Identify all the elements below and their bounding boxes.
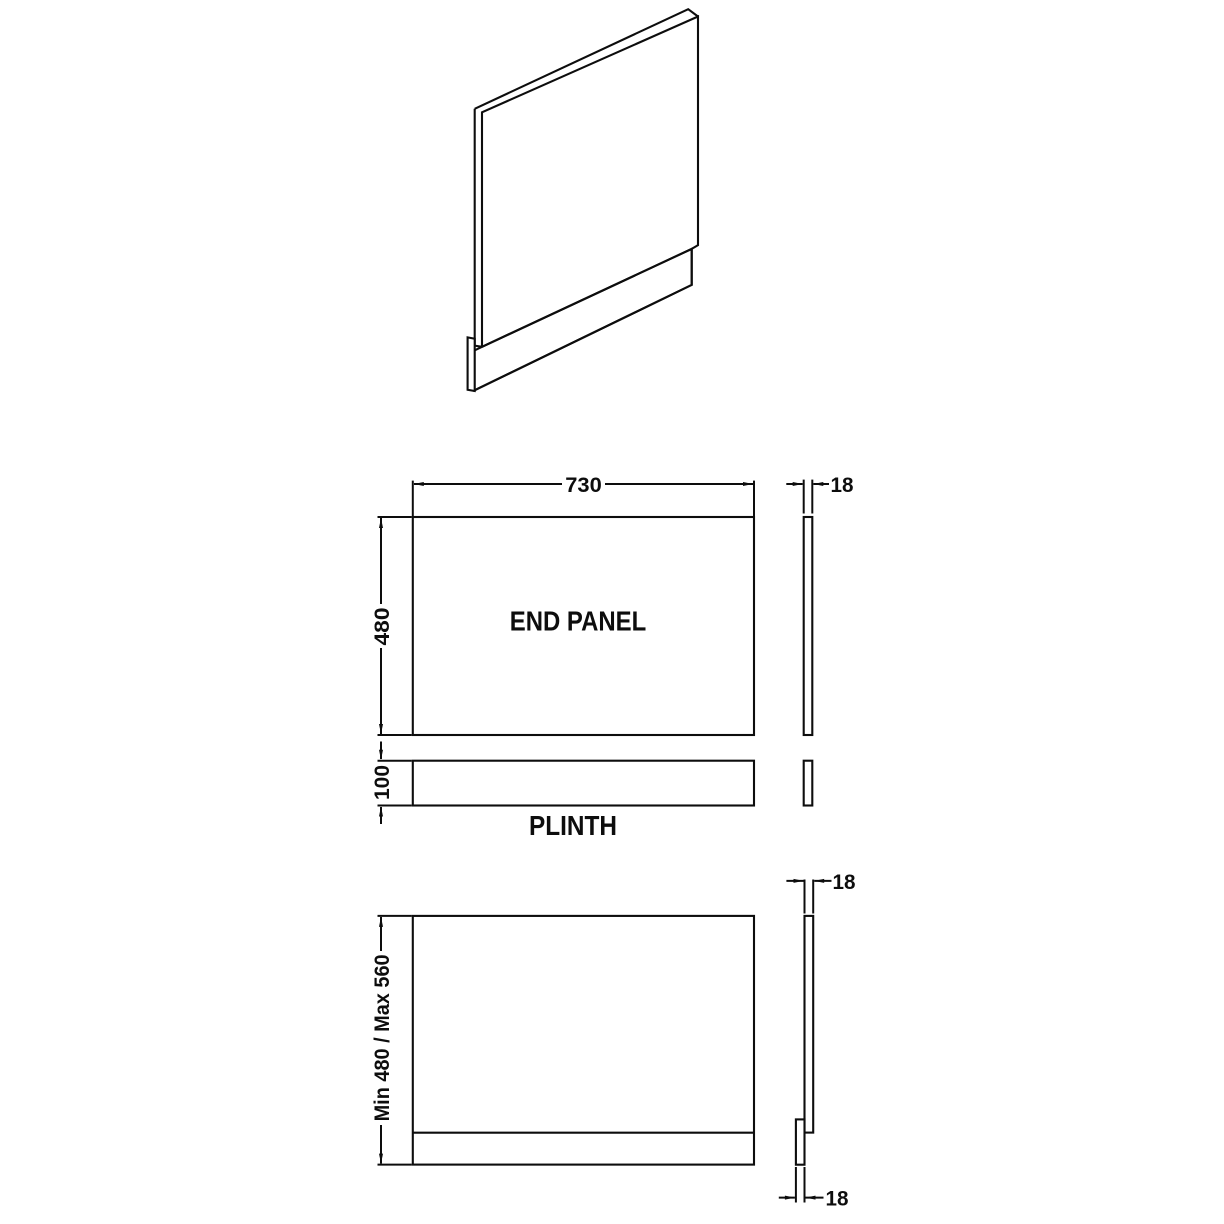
svg-text:PLINTH: PLINTH <box>529 810 617 841</box>
svg-text:END PANEL: END PANEL <box>510 606 647 637</box>
svg-text:730: 730 <box>565 473 602 497</box>
svg-text:18: 18 <box>831 473 854 497</box>
svg-text:480: 480 <box>370 607 394 645</box>
svg-text:100: 100 <box>370 765 394 800</box>
svg-text:Min 480 / Max 560: Min 480 / Max 560 <box>370 954 394 1121</box>
svg-text:18: 18 <box>833 870 856 894</box>
svg-text:18: 18 <box>826 1187 849 1211</box>
